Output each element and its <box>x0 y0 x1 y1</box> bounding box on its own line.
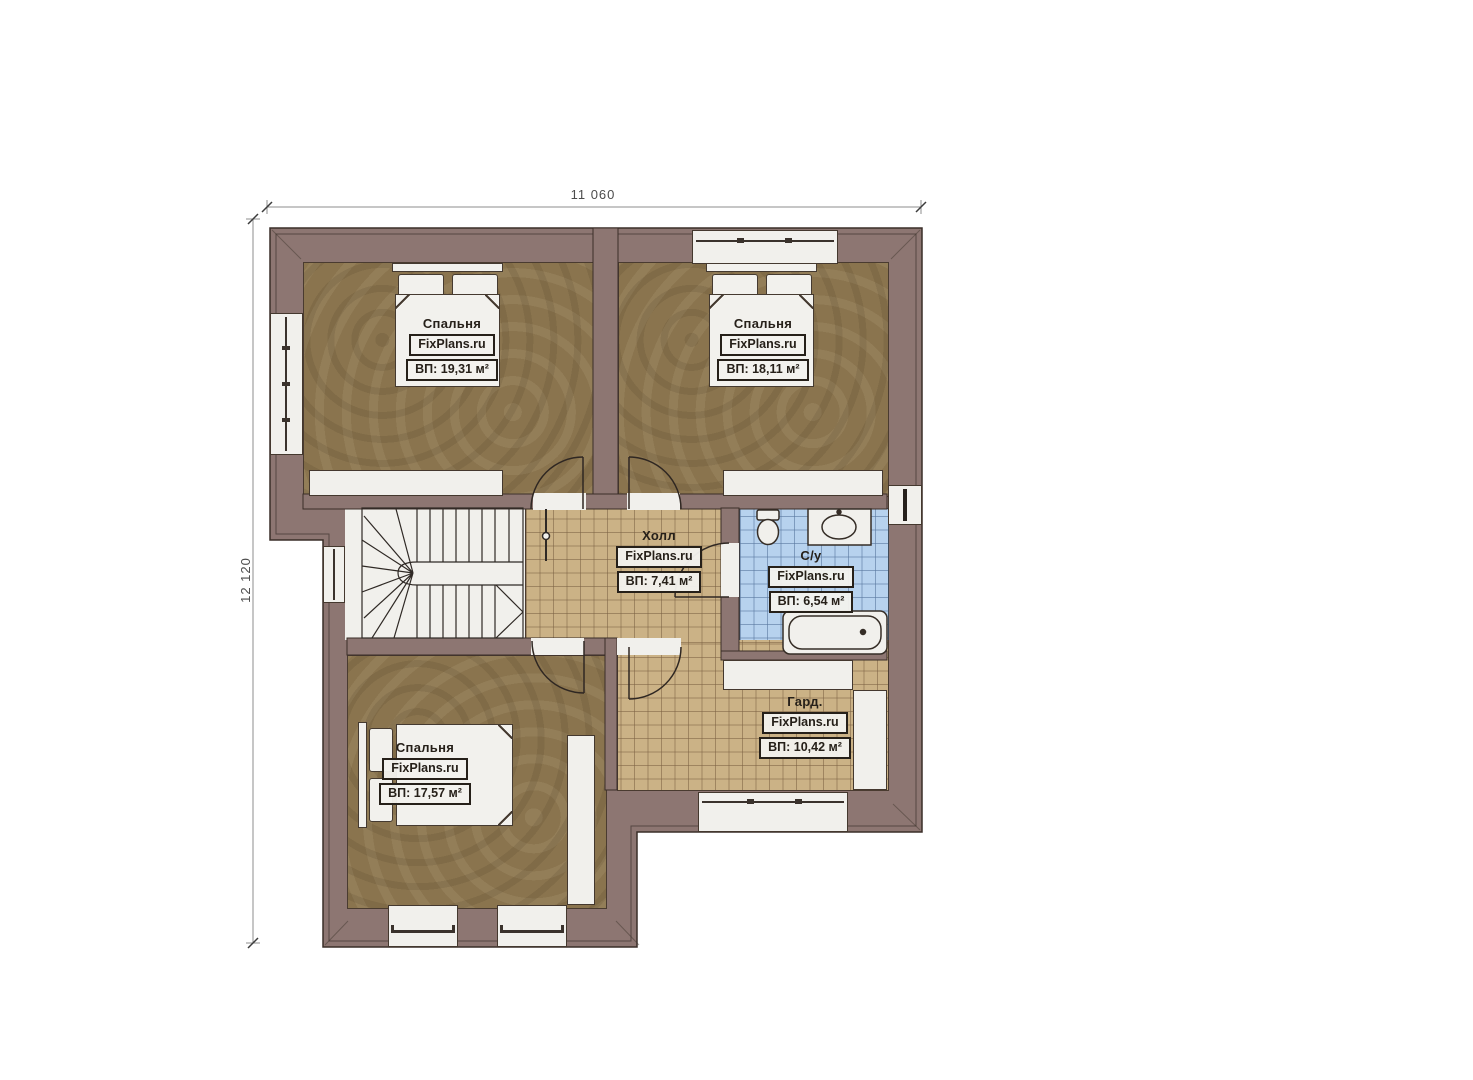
room-area-box: ВП: 19,31 м² <box>406 359 498 381</box>
room-label-bedroom-2: Спальня FixPlans.ru ВП: 18,11 м² <box>698 317 828 381</box>
room-name: С/у <box>800 549 821 563</box>
dimension-height-label: 12 120 <box>238 550 254 610</box>
room-area-box: ВП: 10,42 м² <box>759 737 851 759</box>
room-label-bathroom: С/у FixPlans.ru ВП: 6,54 м² <box>746 549 876 613</box>
watermark-box: FixPlans.ru <box>768 566 853 588</box>
watermark-box: FixPlans.ru <box>762 712 847 734</box>
stair-handrail <box>543 509 550 561</box>
sink <box>808 509 871 545</box>
dimension-width-label: 11 060 <box>553 187 633 202</box>
watermark-box: FixPlans.ru <box>382 758 467 780</box>
detail-layer <box>0 0 1473 1080</box>
staircase <box>362 508 523 638</box>
floor-plan: 11 060 12 120 Спальня FixPlans.ru ВП: 19… <box>0 0 1473 1080</box>
room-area-box: ВП: 17,57 м² <box>379 783 471 805</box>
room-area-box: ВП: 18,11 м² <box>717 359 808 381</box>
room-name: Спальня <box>396 741 454 755</box>
room-name: Спальня <box>734 317 792 331</box>
room-label-hall: Холл FixPlans.ru ВП: 7,41 м² <box>594 529 724 593</box>
watermark-box: FixPlans.ru <box>720 334 805 356</box>
room-area-box: ВП: 6,54 м² <box>769 591 854 613</box>
bathtub <box>783 611 887 654</box>
room-label-bedroom-1: Спальня FixPlans.ru ВП: 19,31 м² <box>387 317 517 381</box>
toilet <box>757 510 779 545</box>
dimension-line-top <box>262 200 926 214</box>
room-area-box: ВП: 7,41 м² <box>617 571 702 593</box>
watermark-box: FixPlans.ru <box>616 546 701 568</box>
watermark-box: FixPlans.ru <box>409 334 494 356</box>
room-name: Спальня <box>423 317 481 331</box>
room-name: Гард. <box>787 695 822 709</box>
room-label-wardrobe: Гард. FixPlans.ru ВП: 10,42 м² <box>740 695 870 759</box>
room-label-bedroom-3: Спальня FixPlans.ru ВП: 17,57 м² <box>360 741 490 805</box>
room-name: Холл <box>642 529 676 543</box>
